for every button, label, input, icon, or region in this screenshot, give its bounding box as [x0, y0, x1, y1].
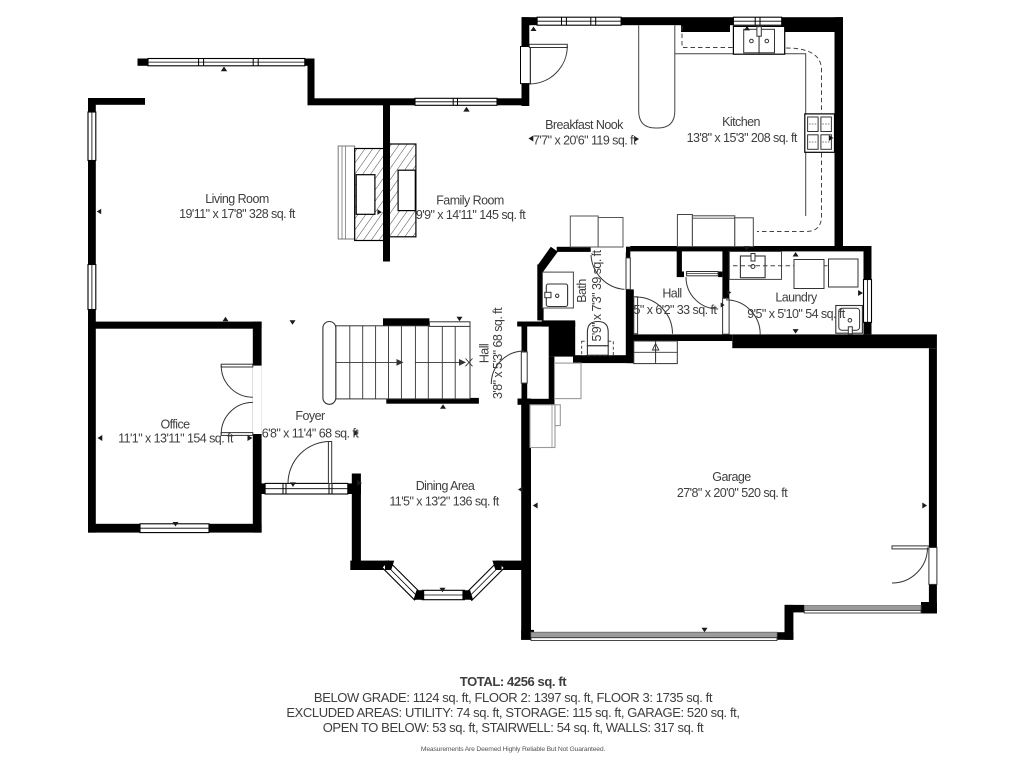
svg-text:BELOW GRADE: 1124 sq. ft, FLOO: BELOW GRADE: 1124 sq. ft, FLOOR 2: 1397 …	[314, 690, 713, 705]
svg-text:TOTAL: 4256 sq. ft: TOTAL: 4256 sq. ft	[460, 674, 568, 689]
svg-text:13'8" x 15'3" 208 sq. ft: 13'8" x 15'3" 208 sq. ft	[687, 131, 798, 145]
svg-text:3'8" x 5'3" 68 sq. ft: 3'8" x 5'3" 68 sq. ft	[491, 307, 505, 399]
svg-text:Office: Office	[160, 418, 190, 432]
svg-text:5'9" x 7'3" 39 sq. ft: 5'9" x 7'3" 39 sq. ft	[590, 249, 604, 341]
svg-text:Hall: Hall	[478, 344, 492, 363]
svg-text:Laundry: Laundry	[775, 291, 818, 305]
svg-text:Garage: Garage	[712, 470, 751, 484]
svg-text:11'5" x 13'2" 136 sq. ft: 11'5" x 13'2" 136 sq. ft	[389, 495, 499, 509]
svg-text:19'11" x 17'8" 328 sq. ft: 19'11" x 17'8" 328 sq. ft	[179, 207, 296, 221]
svg-text:OPEN TO BELOW: 53 sq. ft, STAI: OPEN TO BELOW: 53 sq. ft, STAIRWELL: 54 …	[323, 720, 704, 735]
svg-text:Bath: Bath	[575, 279, 589, 303]
svg-text:EXCLUDED AREAS: UTILITY: 74 sq: EXCLUDED AREAS: UTILITY: 74 sq. ft, STOR…	[286, 705, 739, 720]
svg-text:5" x 6'2" 33 sq. ft: 5" x 6'2" 33 sq. ft	[634, 303, 718, 317]
svg-text:Family Room: Family Room	[436, 194, 504, 208]
svg-text:Kitchen: Kitchen	[722, 115, 760, 129]
svg-text:Breakfast Nook: Breakfast Nook	[545, 118, 624, 132]
svg-text:11'1" x 13'11" 154 sq. ft: 11'1" x 13'11" 154 sq. ft	[118, 432, 234, 446]
svg-text:Hall: Hall	[662, 287, 681, 301]
svg-text:Foyer: Foyer	[295, 409, 325, 423]
svg-text:7'7" x 20'6" 119 sq. ft: 7'7" x 20'6" 119 sq. ft	[533, 133, 637, 147]
svg-text:9'9" x 14'11" 145 sq. ft: 9'9" x 14'11" 145 sq. ft	[416, 208, 526, 222]
svg-text:Living Room: Living Room	[205, 192, 269, 206]
svg-text:Dining Area: Dining Area	[416, 479, 475, 493]
svg-text:9'5" x 5'10" 54 sq. ft: 9'5" x 5'10" 54 sq. ft	[747, 307, 846, 321]
svg-text:6'8" x 11'4" 68 sq. ft: 6'8" x 11'4" 68 sq. ft	[262, 426, 360, 440]
svg-text:Measurements Are Deemed Highly: Measurements Are Deemed Highly Reliable …	[421, 746, 606, 753]
svg-text:27'8" x 20'0" 520 sq. ft: 27'8" x 20'0" 520 sq. ft	[677, 486, 788, 500]
